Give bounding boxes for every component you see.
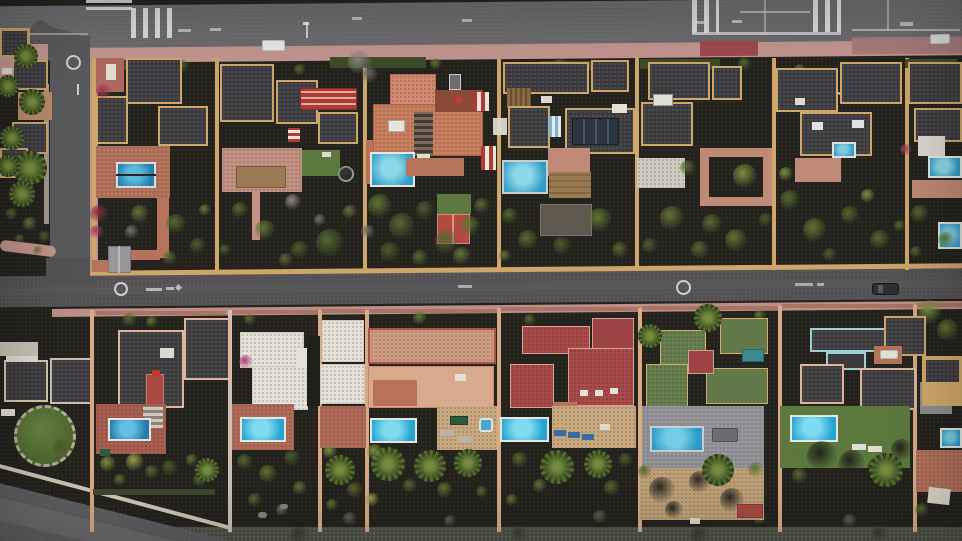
red-house-roof <box>592 318 634 350</box>
palm-tree <box>694 304 722 332</box>
pool-rail <box>116 174 156 176</box>
roof-white <box>322 320 364 362</box>
bush <box>279 253 293 267</box>
rooftop-unit <box>795 98 805 105</box>
swimming-pool <box>240 417 286 442</box>
road-arrow-dash <box>817 283 824 286</box>
bougainvillea <box>96 84 112 100</box>
garden-path <box>700 148 772 157</box>
bush <box>748 462 764 478</box>
blue-lounger <box>568 432 580 438</box>
wood-pergola <box>507 88 531 108</box>
palm-tree <box>414 450 446 482</box>
chimney <box>449 74 461 90</box>
bush <box>237 454 253 470</box>
bush <box>843 514 857 528</box>
bush <box>343 512 357 526</box>
sun-lounger <box>868 446 882 452</box>
crosswalk <box>131 8 178 38</box>
bush <box>259 465 277 483</box>
lane-dash <box>900 22 913 26</box>
dark-garden-bed <box>807 441 837 471</box>
sun-lounger <box>458 436 472 442</box>
roof-dark <box>591 60 629 92</box>
lane-dash <box>210 28 221 31</box>
sand-patio <box>552 406 636 448</box>
stop-line <box>692 32 841 35</box>
roof-white <box>320 364 365 404</box>
rooftop-unit <box>160 348 174 358</box>
road-arrow-dash <box>166 287 174 290</box>
bougainvillea <box>90 225 104 239</box>
intersection <box>46 258 94 284</box>
blue-white-awning <box>549 116 561 137</box>
white-storage-box <box>927 487 951 505</box>
bush <box>343 205 357 219</box>
jacuzzi <box>339 167 353 181</box>
maroon-roof <box>688 350 714 374</box>
bush <box>476 486 488 498</box>
road-arrow-dash <box>795 283 813 286</box>
sun-lounger <box>852 444 866 450</box>
bush <box>638 465 652 479</box>
bush <box>131 205 149 223</box>
bush <box>412 250 428 266</box>
bush <box>416 201 434 219</box>
front-wall <box>500 307 640 311</box>
bush <box>293 481 307 495</box>
roof-white <box>918 136 945 156</box>
roof-dark <box>220 64 274 122</box>
front-wall <box>96 311 226 315</box>
skylight <box>812 122 823 130</box>
bush <box>533 479 547 493</box>
tree <box>389 213 415 239</box>
bush <box>759 213 773 227</box>
crosswalk-small <box>86 0 132 10</box>
scrub-patch <box>290 526 310 541</box>
spa-tub <box>479 418 493 432</box>
lane-line-vertical <box>887 0 889 30</box>
terracotta-block <box>373 380 417 406</box>
tree <box>368 194 392 218</box>
green-turf-roof <box>646 364 688 408</box>
streetlamp-head <box>303 22 309 25</box>
terrace-terracotta <box>320 406 366 448</box>
bush <box>612 242 628 258</box>
roof-dark <box>126 58 182 104</box>
bush <box>502 208 518 224</box>
gray-car <box>712 428 738 442</box>
bush <box>779 167 793 181</box>
palm-tree <box>195 458 219 482</box>
scrub-patch <box>511 525 529 541</box>
bush <box>691 241 709 259</box>
ac-unit <box>612 104 627 113</box>
white-car <box>930 34 950 45</box>
bush <box>444 515 456 527</box>
crosswalk <box>813 0 841 32</box>
streetlamp-pole <box>306 24 308 38</box>
rooftop-unit <box>455 374 466 381</box>
red-house-roof <box>568 348 634 406</box>
bush <box>199 204 211 216</box>
car-windshield <box>878 285 883 293</box>
green-table <box>450 416 468 425</box>
tree <box>937 319 959 341</box>
front-wall <box>230 310 318 314</box>
garden-path <box>700 197 772 206</box>
skylight <box>388 120 405 132</box>
lawn-patch <box>302 150 340 176</box>
bush <box>915 503 929 517</box>
roof-dark <box>926 360 959 382</box>
roof-dark <box>96 96 128 144</box>
roof-dark <box>184 318 230 380</box>
swimming-pool <box>832 142 856 158</box>
red-door <box>152 370 160 376</box>
white-chair <box>600 424 610 430</box>
lane-line <box>852 29 960 31</box>
lane-line-vertical <box>764 0 766 34</box>
lawn-patch <box>437 194 471 214</box>
bougainvillea <box>90 205 108 223</box>
palm-tree <box>540 450 574 484</box>
bare-tree <box>362 67 378 83</box>
lane-dash <box>178 29 191 32</box>
bush <box>163 251 177 265</box>
bush <box>789 449 801 461</box>
bush <box>499 250 511 262</box>
bush <box>53 439 71 457</box>
aerial-photo <box>0 0 962 541</box>
rock <box>280 504 288 509</box>
sun-lounger <box>1 409 15 416</box>
green-table <box>100 449 110 456</box>
bush <box>323 445 337 459</box>
hedge <box>330 57 426 68</box>
bougainvillea <box>239 355 253 369</box>
bush <box>100 456 116 472</box>
shed-ridge <box>118 246 120 273</box>
palm-tree <box>14 44 38 68</box>
roof-dark <box>908 62 962 104</box>
palm-tree <box>638 324 662 348</box>
gray-pergola <box>540 204 592 236</box>
swimming-pool <box>370 418 417 443</box>
bush <box>166 214 186 234</box>
bush <box>861 189 875 203</box>
rooftop-unit <box>541 96 552 103</box>
bush <box>291 241 309 259</box>
terrace-pink <box>795 158 841 182</box>
roof-dark <box>800 364 844 404</box>
bush <box>413 311 427 325</box>
bush <box>518 230 538 250</box>
blue-lounger <box>554 430 566 436</box>
bush <box>437 482 453 498</box>
swimming-pool <box>650 426 704 452</box>
dark-garden-bed <box>649 477 675 503</box>
lane-dash <box>732 20 742 23</box>
teal-box <box>742 349 764 362</box>
bush <box>294 64 306 76</box>
bush <box>506 494 518 506</box>
roof-dark <box>50 358 92 404</box>
palm-tree <box>869 453 903 487</box>
white-pergola <box>493 118 507 135</box>
skylight <box>653 94 673 106</box>
swimming-pool <box>940 428 962 448</box>
red-house-roof <box>510 364 554 408</box>
bush <box>792 468 808 484</box>
bush <box>380 242 400 262</box>
tree <box>733 164 757 188</box>
bush <box>146 316 158 328</box>
swimming-pool <box>928 156 962 178</box>
bush <box>593 510 607 524</box>
dark-car <box>872 283 899 295</box>
palm-tree <box>454 449 482 477</box>
roof-dark <box>840 62 902 104</box>
bush <box>248 493 262 507</box>
white-chair <box>690 518 700 524</box>
white-chair <box>580 390 588 396</box>
front-wall <box>320 309 498 313</box>
stone-circle <box>285 194 301 210</box>
bush <box>361 225 375 239</box>
swimming-pool <box>502 160 548 194</box>
roof-dark <box>641 102 693 146</box>
roof-dark <box>860 368 916 410</box>
road-arrow-dash <box>146 288 162 291</box>
bush <box>642 238 658 254</box>
round-lawn <box>14 405 76 467</box>
roof-dark <box>4 360 48 402</box>
hedge <box>93 489 215 495</box>
bush <box>403 479 417 493</box>
red-planter <box>737 504 763 518</box>
roof-dark <box>318 112 358 144</box>
bush <box>244 314 256 326</box>
bush <box>232 202 248 218</box>
lot-wall <box>215 58 219 270</box>
tree <box>460 216 480 236</box>
swimming-pool <box>790 415 838 442</box>
bush <box>512 452 528 468</box>
bush <box>123 313 137 327</box>
road-arrow-dash <box>458 285 472 288</box>
road-roundel-marking <box>676 280 691 295</box>
staircase <box>414 112 433 156</box>
tree <box>660 206 684 230</box>
patio-concrete <box>0 342 38 356</box>
palm-tree <box>584 450 612 478</box>
gravel-pergola-roof <box>637 158 685 188</box>
scrub-patch <box>871 525 889 541</box>
rattan-pergola <box>236 166 286 188</box>
bush <box>619 453 633 467</box>
bush <box>870 230 890 250</box>
bush <box>145 465 159 479</box>
palm-tree <box>0 126 24 150</box>
solar-panel-array <box>572 118 619 145</box>
bush <box>219 244 231 256</box>
rock <box>258 512 267 518</box>
bush <box>680 160 696 176</box>
terrace-terracotta <box>406 158 464 176</box>
swimming-pool <box>108 418 151 441</box>
red-chair <box>455 97 462 103</box>
palm-tree <box>19 89 45 115</box>
terrace-pink <box>912 180 962 198</box>
bush <box>841 206 859 224</box>
bush <box>33 246 43 256</box>
white-door <box>106 64 116 80</box>
roof-dark <box>508 106 550 148</box>
road-roundel-marking <box>66 55 81 70</box>
bush <box>524 314 536 326</box>
bush <box>347 482 363 498</box>
lane-dash <box>462 19 472 22</box>
dark-garden-bed <box>839 450 865 476</box>
skylight <box>852 120 864 128</box>
white-car <box>880 350 898 359</box>
roof-dark <box>712 66 742 100</box>
sun-lounger <box>440 430 454 436</box>
bush <box>314 214 326 226</box>
bush <box>114 474 126 486</box>
bush <box>911 205 929 223</box>
palm-tree <box>702 454 734 486</box>
bush <box>365 493 379 507</box>
left-road <box>50 36 90 282</box>
bush <box>326 499 338 511</box>
bush <box>23 217 37 231</box>
white-van <box>262 40 285 51</box>
bush <box>823 248 837 262</box>
bush <box>780 190 800 210</box>
solar-panel-strip <box>6 356 38 362</box>
red-awning <box>288 128 300 142</box>
streetlamp-pole <box>77 84 79 95</box>
bush <box>894 220 906 232</box>
tree <box>316 229 344 257</box>
bush <box>604 480 620 496</box>
red-white-awning <box>481 146 496 170</box>
tree <box>803 218 827 242</box>
red-white-awning <box>473 92 489 111</box>
sidewalk-top-red-patch <box>700 41 758 57</box>
bush <box>474 198 490 214</box>
blue-lounger <box>582 434 594 440</box>
bush <box>255 220 275 240</box>
bush <box>453 247 471 265</box>
dark-garden-bed <box>665 501 683 519</box>
terrace-terracotta <box>916 450 962 492</box>
bush <box>6 208 18 220</box>
white-chair <box>610 388 618 394</box>
roof-dark <box>776 68 838 112</box>
lane-dash <box>352 17 362 20</box>
bush <box>126 453 144 471</box>
lot-wall <box>90 310 94 532</box>
bush <box>430 58 442 70</box>
roof-dark <box>158 106 208 146</box>
tree <box>725 229 747 251</box>
front-wall <box>782 304 913 308</box>
lot-wall <box>497 58 501 270</box>
lane-dash <box>697 21 707 24</box>
soil-gap <box>307 336 320 406</box>
bush <box>190 238 206 254</box>
palm-tree <box>325 455 355 485</box>
bush <box>367 444 383 460</box>
bush <box>910 246 922 258</box>
green-turf-roof <box>706 368 768 404</box>
swimming-pool <box>500 417 549 442</box>
tree <box>588 208 612 232</box>
bush <box>39 231 51 243</box>
white-chair <box>322 152 331 157</box>
scrub-patch <box>690 526 710 541</box>
bougainvillea <box>900 144 912 156</box>
road-roundel-marking <box>114 282 128 296</box>
lane-line <box>740 11 810 13</box>
peach-house-upper-roof <box>368 328 496 364</box>
bush <box>15 234 25 244</box>
bush <box>284 450 300 466</box>
bush <box>702 214 722 234</box>
rooftop-unit <box>2 68 12 74</box>
bush <box>938 232 954 248</box>
palm-tree <box>9 181 35 207</box>
white-chair <box>595 390 603 396</box>
wood-deck <box>549 172 591 198</box>
crosswalk <box>692 0 719 33</box>
bush <box>553 237 571 255</box>
red-corrugated-roof <box>300 88 357 110</box>
bush <box>125 225 139 239</box>
bush <box>162 460 178 476</box>
